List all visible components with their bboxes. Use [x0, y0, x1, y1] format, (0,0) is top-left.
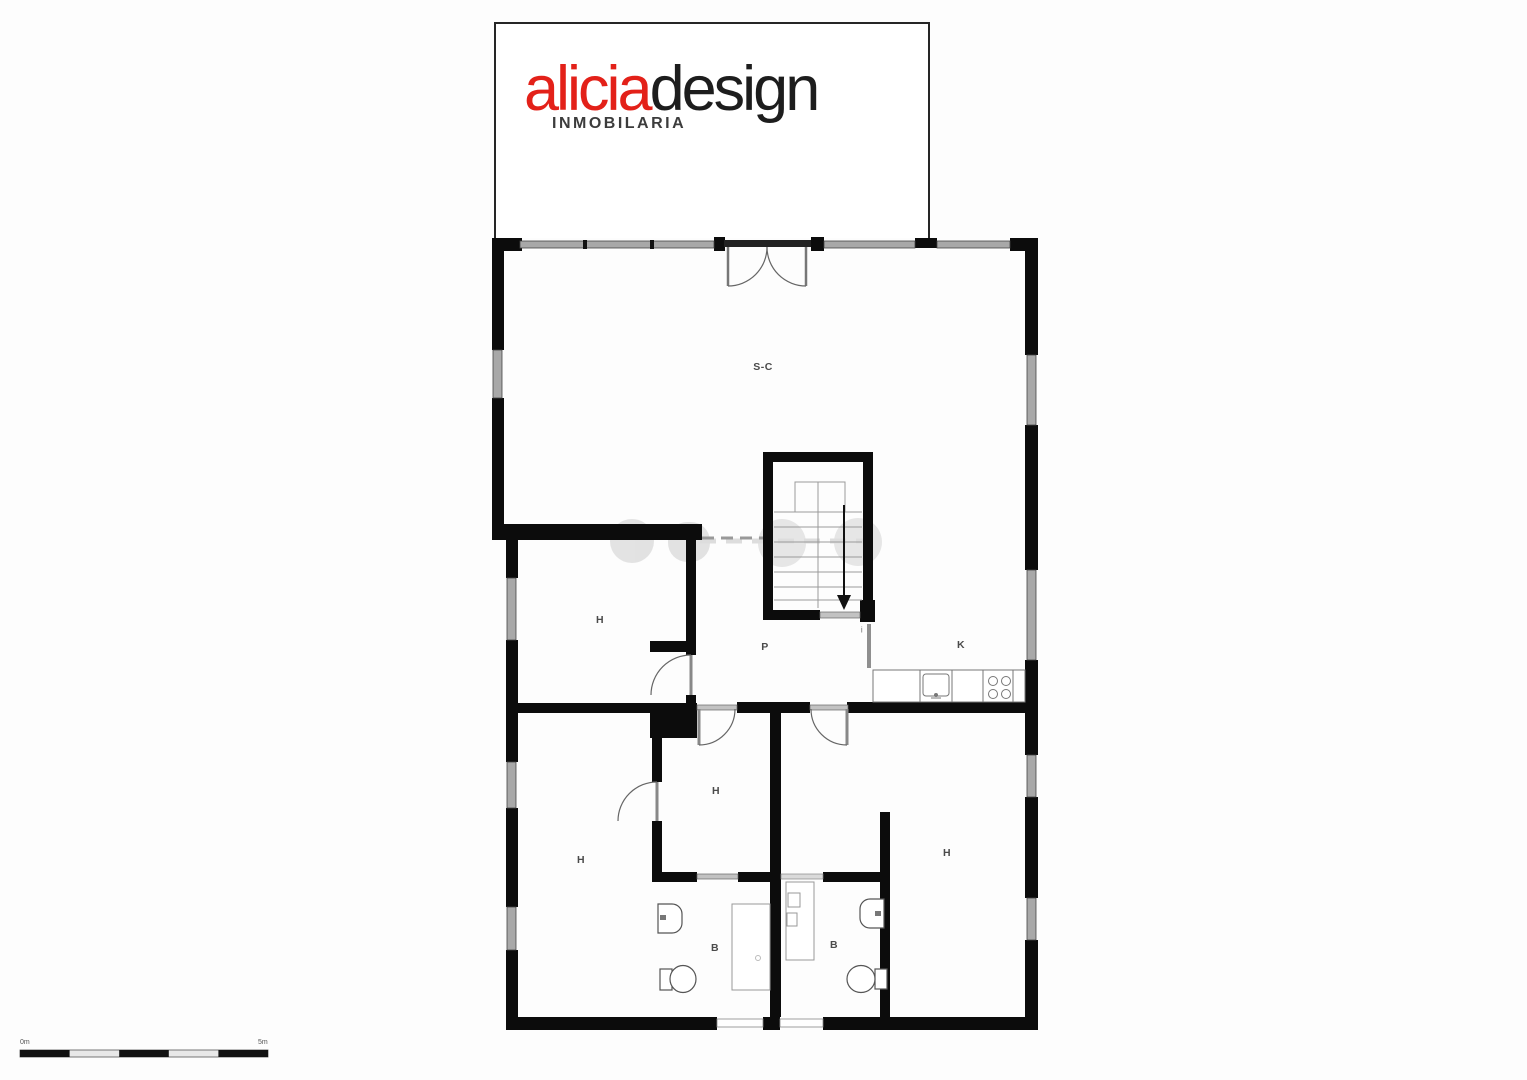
kitchen-sink-icon — [923, 674, 949, 698]
sink-icon — [658, 904, 682, 933]
scale-bar — [20, 1050, 268, 1057]
toilet-icon — [660, 966, 696, 993]
bath2-fixtures — [786, 882, 887, 993]
door-h2 — [697, 705, 737, 745]
door-bath1 — [697, 874, 738, 879]
door-bedroom-left — [618, 782, 657, 821]
room-label-passage: P — [761, 641, 769, 653]
floor-plan — [0, 0, 1527, 1080]
room-label-kitchen: K — [957, 639, 965, 651]
room-label-living: S-C — [753, 361, 773, 373]
shower-tray — [732, 904, 770, 990]
room-label-entry: i — [861, 626, 863, 635]
room-label-hall1: H — [596, 614, 604, 626]
sink-icon — [860, 899, 884, 928]
kitchen-counter — [873, 670, 1025, 702]
room-label-bath2: B — [830, 939, 838, 951]
room-label-bedroom-left: H — [577, 854, 585, 866]
page-canvas: aliciadesign INMOBILARIA — [0, 0, 1527, 1080]
door-h1 — [651, 655, 691, 695]
washbasin-unit — [786, 882, 814, 960]
room-label-hall2: H — [712, 785, 720, 797]
door-h3 — [810, 705, 848, 745]
scale-end-label: 5m — [258, 1039, 268, 1046]
room-label-bedroom-right: H — [943, 847, 951, 859]
scale-start-label: 0m — [20, 1039, 30, 1046]
door-bath2 — [781, 874, 823, 879]
doors — [618, 247, 869, 879]
entrance-double-door — [728, 247, 806, 286]
toilet-icon — [847, 966, 887, 993]
room-label-bath1: B — [711, 942, 719, 954]
